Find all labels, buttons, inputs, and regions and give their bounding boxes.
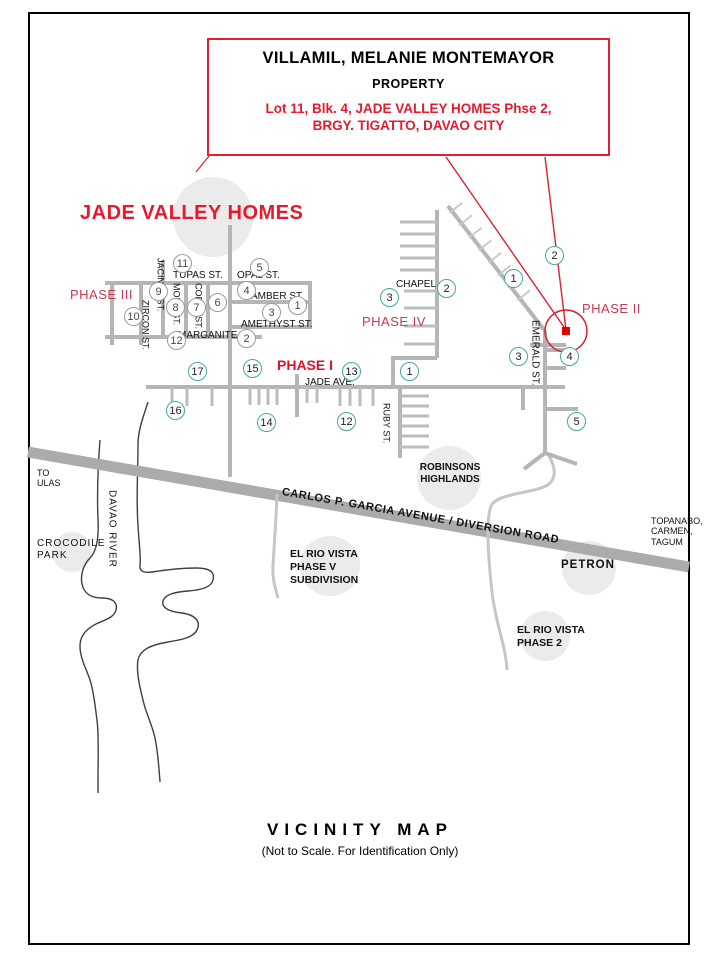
block-number-circle: 1 (288, 296, 307, 315)
phase3-label: PHASE III (70, 288, 133, 303)
property-address: Lot 11, Blk. 4, JADE VALLEY HOMES Phse 2… (209, 100, 608, 134)
phase2-label: PHASE II (582, 302, 641, 317)
chapel-label: CHAPEL (396, 279, 436, 291)
block-number-circle: 17 (188, 362, 207, 381)
block-number-circle: 9 (149, 282, 168, 301)
block-number-circle: 10 (124, 307, 143, 326)
block-number-circle: 7 (187, 298, 206, 317)
block-number-circle: 4 (560, 347, 579, 366)
subdivision-title: JADE VALLEY HOMES (80, 202, 303, 225)
callout-box: VILLAMIL, MELANIE MONTEMAYOR PROPERTY Lo… (207, 38, 610, 156)
street-label-ruby: RUBY ST. (381, 403, 391, 443)
block-number-circle: 3 (380, 288, 399, 307)
block-number-circle: 1 (504, 269, 523, 288)
address-line2: BRGY. TIGATTO, DAVAO CITY (313, 118, 505, 133)
crocodile-park-label: CROCODILE PARK (37, 538, 105, 561)
property-word: PROPERTY (209, 77, 608, 91)
block-number-circle: 5 (250, 258, 269, 277)
block-number-circle: 6 (208, 293, 227, 312)
map-subtitle: (Not to Scale. For Identification Only) (0, 844, 720, 858)
robinsons-highlands-label: ROBINSONS HIGHLANDS (404, 462, 496, 485)
block-number-circle: 2 (437, 279, 456, 298)
block-number-circle: 3 (509, 347, 528, 366)
davao-river-label: DAVAO RIVER (106, 490, 118, 568)
street-label-amethyst: AMETHYST ST. (241, 319, 313, 331)
el-rio-vista-phase2-label: EL RIO VISTA PHASE 2 (517, 624, 585, 650)
block-number-circle: 14 (257, 413, 276, 432)
block-number-circle: 3 (262, 303, 281, 322)
owner-name: VILLAMIL, MELANIE MONTEMAYOR (209, 49, 608, 68)
map-title: VICINITY MAP (0, 820, 720, 840)
to-ulas-label: TO ULAS (37, 468, 61, 489)
block-number-circle: 8 (166, 298, 185, 317)
block-number-circle: 4 (237, 281, 256, 300)
property-marker (562, 327, 570, 335)
block-number-circle: 11 (173, 254, 192, 273)
landmark-halo-circles (52, 177, 616, 661)
block-number-circle: 5 (567, 412, 586, 431)
street-label-marganite: MARGANITE (178, 330, 237, 342)
vicinity-map-page: VILLAMIL, MELANIE MONTEMAYOR PROPERTY Lo… (0, 0, 720, 960)
block-number-circle: 2 (545, 246, 564, 265)
phase4-label: PHASE IV (362, 315, 426, 330)
block-number-circle: 12 (337, 412, 356, 431)
address-line1: Lot 11, Blk. 4, JADE VALLEY HOMES Phse 2… (265, 101, 551, 116)
block-number-circle: 1 (400, 362, 419, 381)
block-number-circle: 16 (166, 401, 185, 420)
street-label-zircon: ZIRCON ST. (140, 300, 150, 350)
block-number-circle: 15 (243, 359, 262, 378)
block-number-circle: 2 (237, 329, 256, 348)
block-number-circle: 13 (342, 362, 361, 381)
petron-label: PETRON (561, 559, 615, 572)
street-label-emerald: EMERALD ST. (529, 320, 541, 386)
topanabo-label: TOPANABO, CARMEN, TAGUM (651, 516, 703, 547)
phase1-label: PHASE I (277, 357, 333, 373)
el-rio-vista-phase5-label: EL RIO VISTA PHASE V SUBDIVISION (290, 548, 358, 587)
block-number-circle: 12 (167, 331, 186, 350)
